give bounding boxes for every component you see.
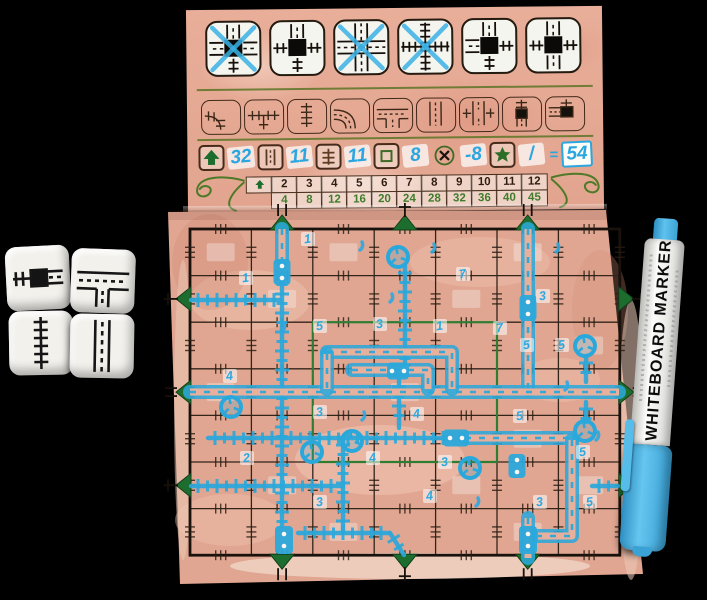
route-die-road-junction bbox=[70, 248, 136, 314]
photo-scene: 3211118-8/=54 23456789101112481216202428… bbox=[0, 0, 707, 600]
route-die-rail-straight bbox=[8, 310, 73, 375]
marker-pocket-clip bbox=[620, 419, 634, 491]
route-die-station-straight bbox=[4, 244, 71, 311]
marker-cap-tip bbox=[632, 546, 653, 557]
marker-body: WHITEBOARD MARKER bbox=[630, 238, 685, 446]
marker-top-plug bbox=[653, 218, 679, 242]
marker-cap bbox=[619, 443, 673, 552]
route-die-road-straight bbox=[69, 313, 134, 378]
